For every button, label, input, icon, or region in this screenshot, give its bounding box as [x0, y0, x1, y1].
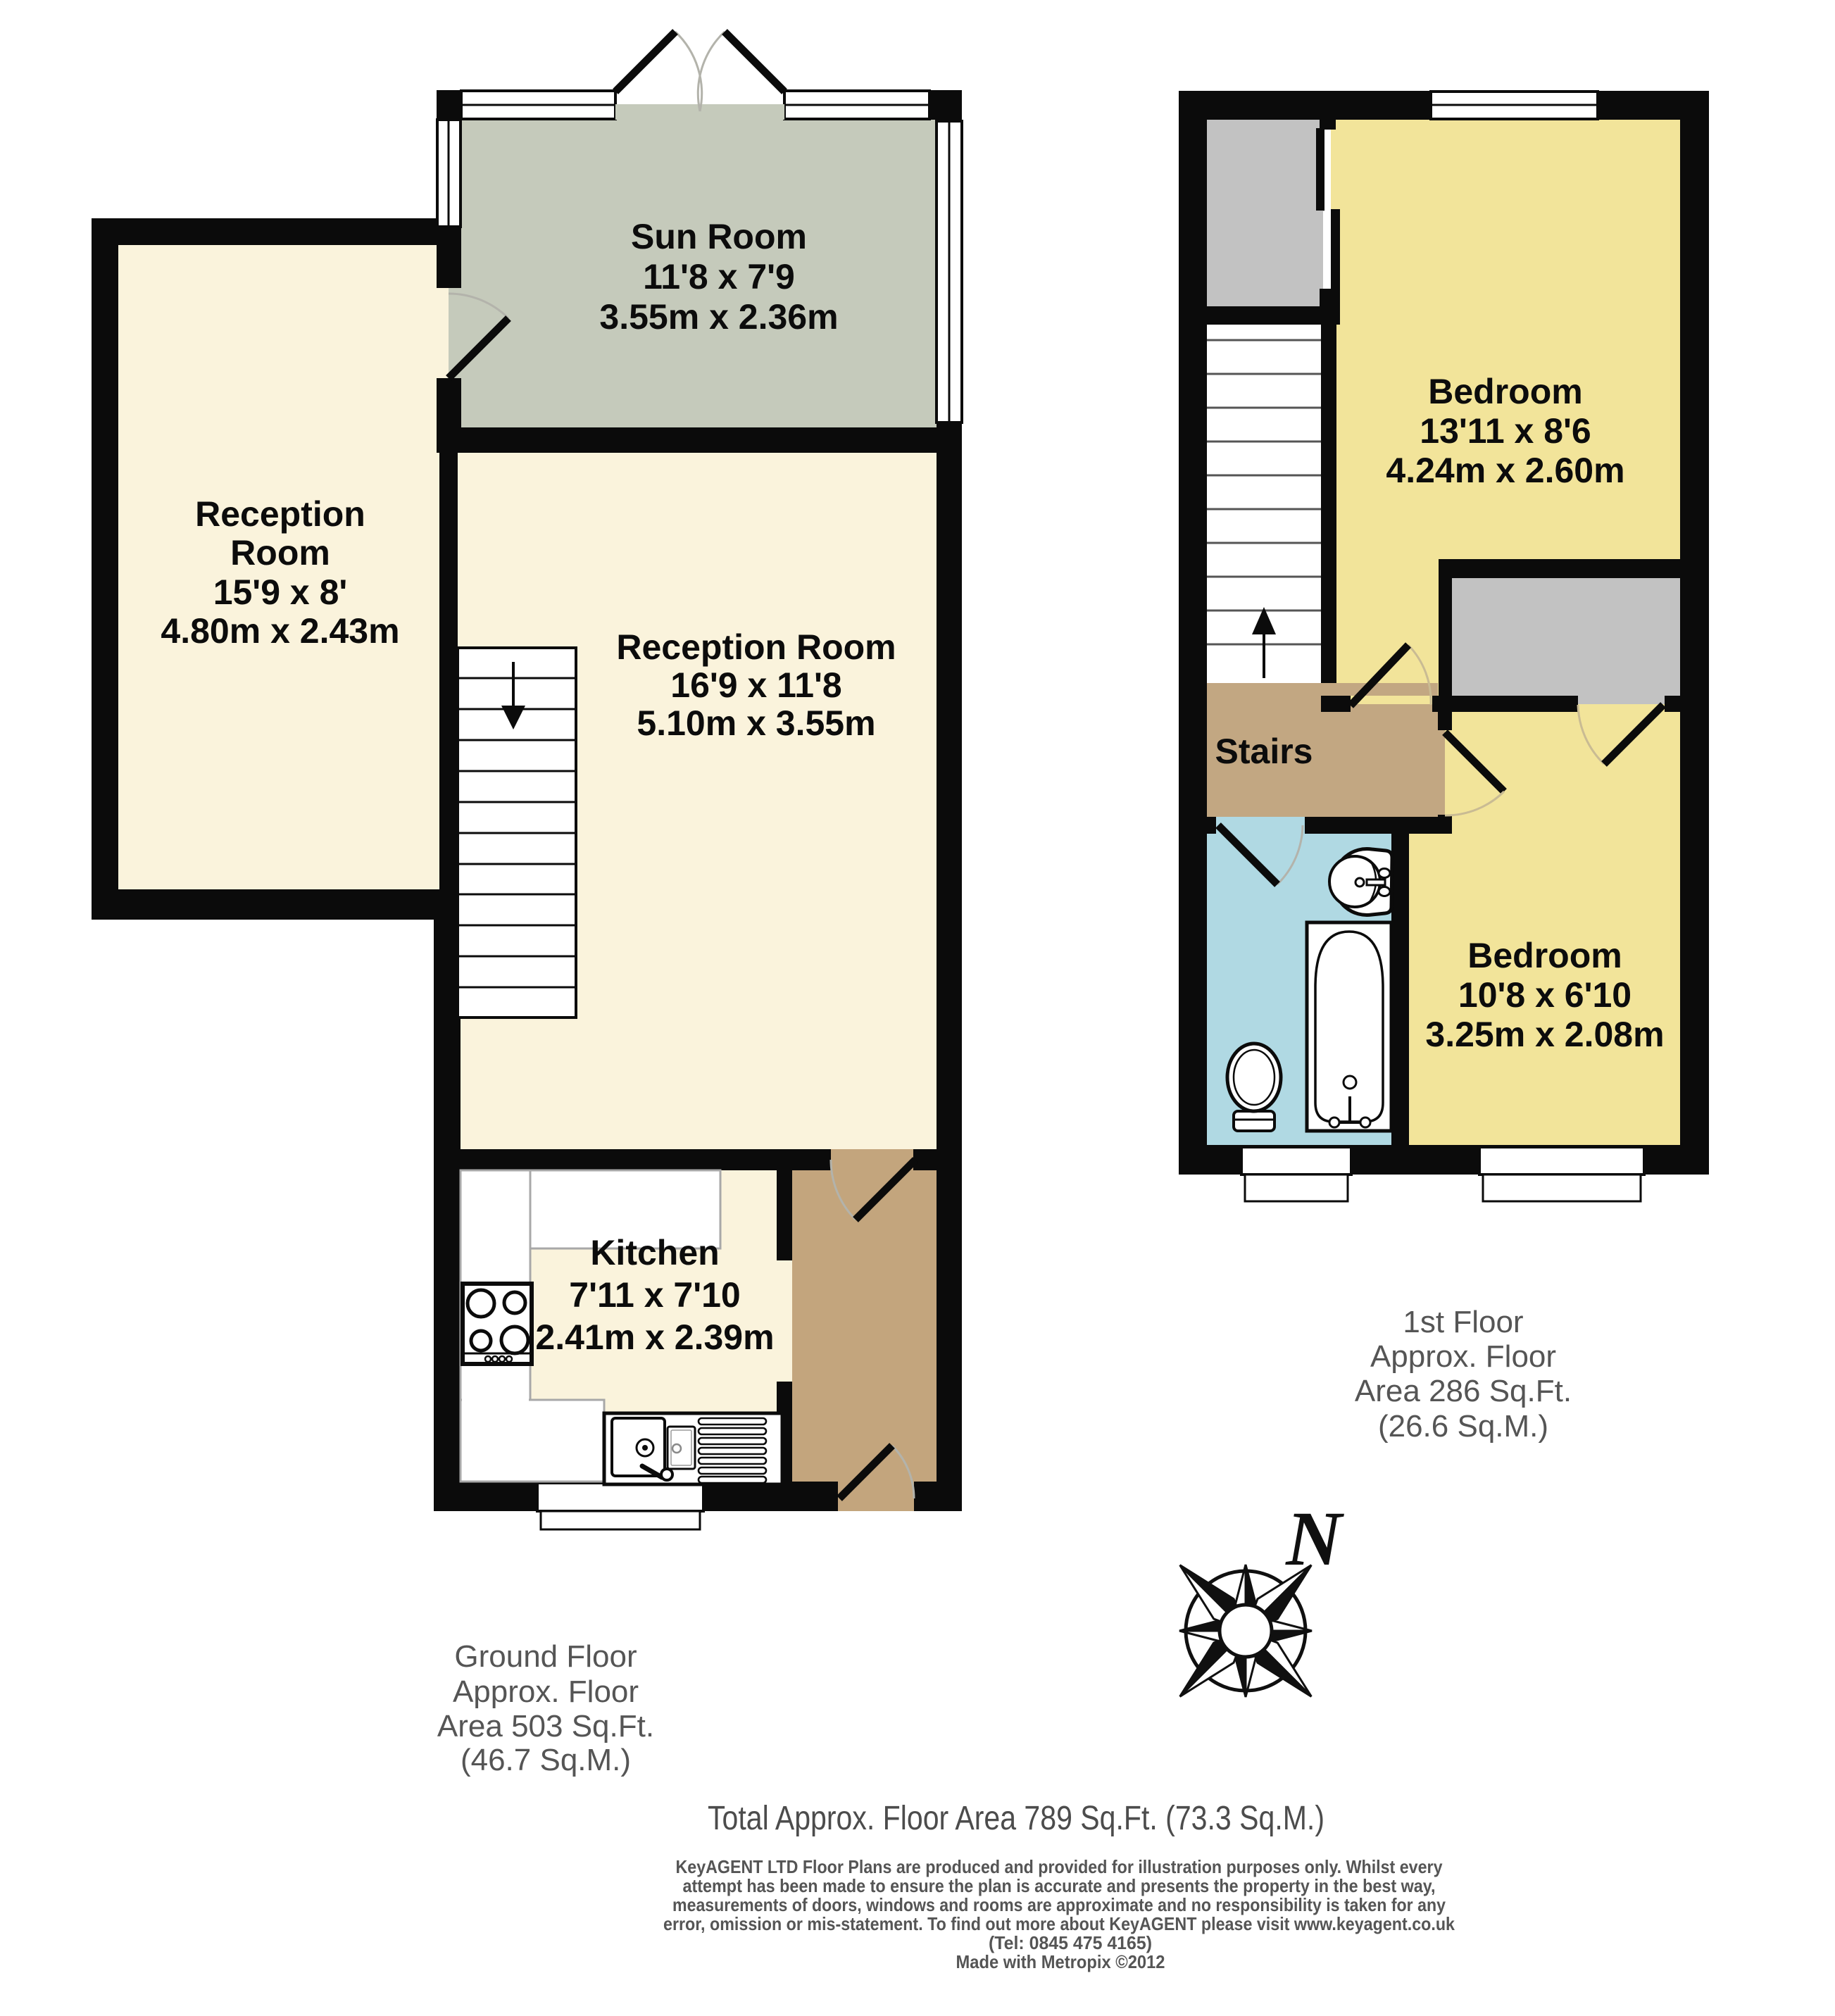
svg-text:5.10m x 3.55m: 5.10m x 3.55m	[637, 703, 875, 743]
svg-text:Approx. Floor: Approx. Floor	[453, 1674, 639, 1709]
svg-text:KeyAGENT LTD Floor Plans are p: KeyAGENT LTD Floor Plans are produced an…	[676, 1856, 1443, 1877]
svg-text:Area 286 Sq.Ft.: Area 286 Sq.Ft.	[1355, 1374, 1572, 1408]
svg-text:measurements of doors, windows: measurements of doors, windows and rooms…	[672, 1894, 1446, 1915]
svg-text:Sun Room: Sun Room	[631, 217, 807, 256]
svg-text:3.55m x 2.36m: 3.55m x 2.36m	[599, 297, 838, 337]
svg-text:Approx. Floor: Approx. Floor	[1370, 1339, 1556, 1374]
svg-text:10'8 x 6'10: 10'8 x 6'10	[1458, 975, 1632, 1015]
svg-text:15'9 x 8': 15'9 x 8'	[213, 572, 348, 612]
svg-text:1st Floor: 1st Floor	[1403, 1305, 1523, 1339]
svg-text:Bedroom: Bedroom	[1467, 936, 1622, 975]
svg-text:Area 503 Sq.Ft.: Area 503 Sq.Ft.	[437, 1709, 654, 1743]
svg-text:Bedroom: Bedroom	[1428, 372, 1582, 411]
svg-text:16'9 x 11'8: 16'9 x 11'8	[670, 665, 841, 705]
svg-text:3.25m x 2.08m: 3.25m x 2.08m	[1425, 1015, 1664, 1054]
svg-text:Room: Room	[230, 533, 330, 572]
svg-text:(Tel: 0845 475 4165): (Tel: 0845 475 4165)	[989, 1932, 1152, 1953]
svg-text:Reception: Reception	[195, 494, 365, 534]
svg-text:N: N	[1284, 1496, 1344, 1582]
svg-text:11'8 x 7'9: 11'8 x 7'9	[643, 257, 795, 296]
svg-text:Kitchen: Kitchen	[590, 1233, 719, 1272]
svg-text:attempt has been made to ensur: attempt has been made to ensure the plan…	[683, 1875, 1436, 1896]
svg-text:Total Approx. Floor Area 789 S: Total Approx. Floor Area 789 Sq.Ft. (73.…	[708, 1800, 1324, 1837]
svg-text:4.80m x 2.43m: 4.80m x 2.43m	[161, 611, 399, 651]
svg-text:Made with Metropix ©2012: Made with Metropix ©2012	[956, 1951, 1165, 1972]
svg-text:Reception Room: Reception Room	[616, 627, 896, 667]
svg-text:Ground Floor: Ground Floor	[454, 1639, 637, 1674]
svg-text:(26.6 Sq.M.): (26.6 Sq.M.)	[1378, 1409, 1548, 1444]
svg-text:(46.7 Sq.M.): (46.7 Sq.M.)	[461, 1743, 631, 1777]
svg-text:error, omission or mis-stateme: error, omission or mis-statement. To fin…	[663, 1913, 1455, 1934]
svg-text:4.24m x 2.60m: 4.24m x 2.60m	[1386, 451, 1624, 490]
svg-text:13'11 x 8'6: 13'11 x 8'6	[1420, 411, 1591, 451]
svg-text:7'11 x 7'10: 7'11 x 7'10	[569, 1275, 740, 1315]
svg-text:Stairs: Stairs	[1215, 732, 1313, 771]
svg-text:2.41m x 2.39m: 2.41m x 2.39m	[535, 1317, 774, 1357]
